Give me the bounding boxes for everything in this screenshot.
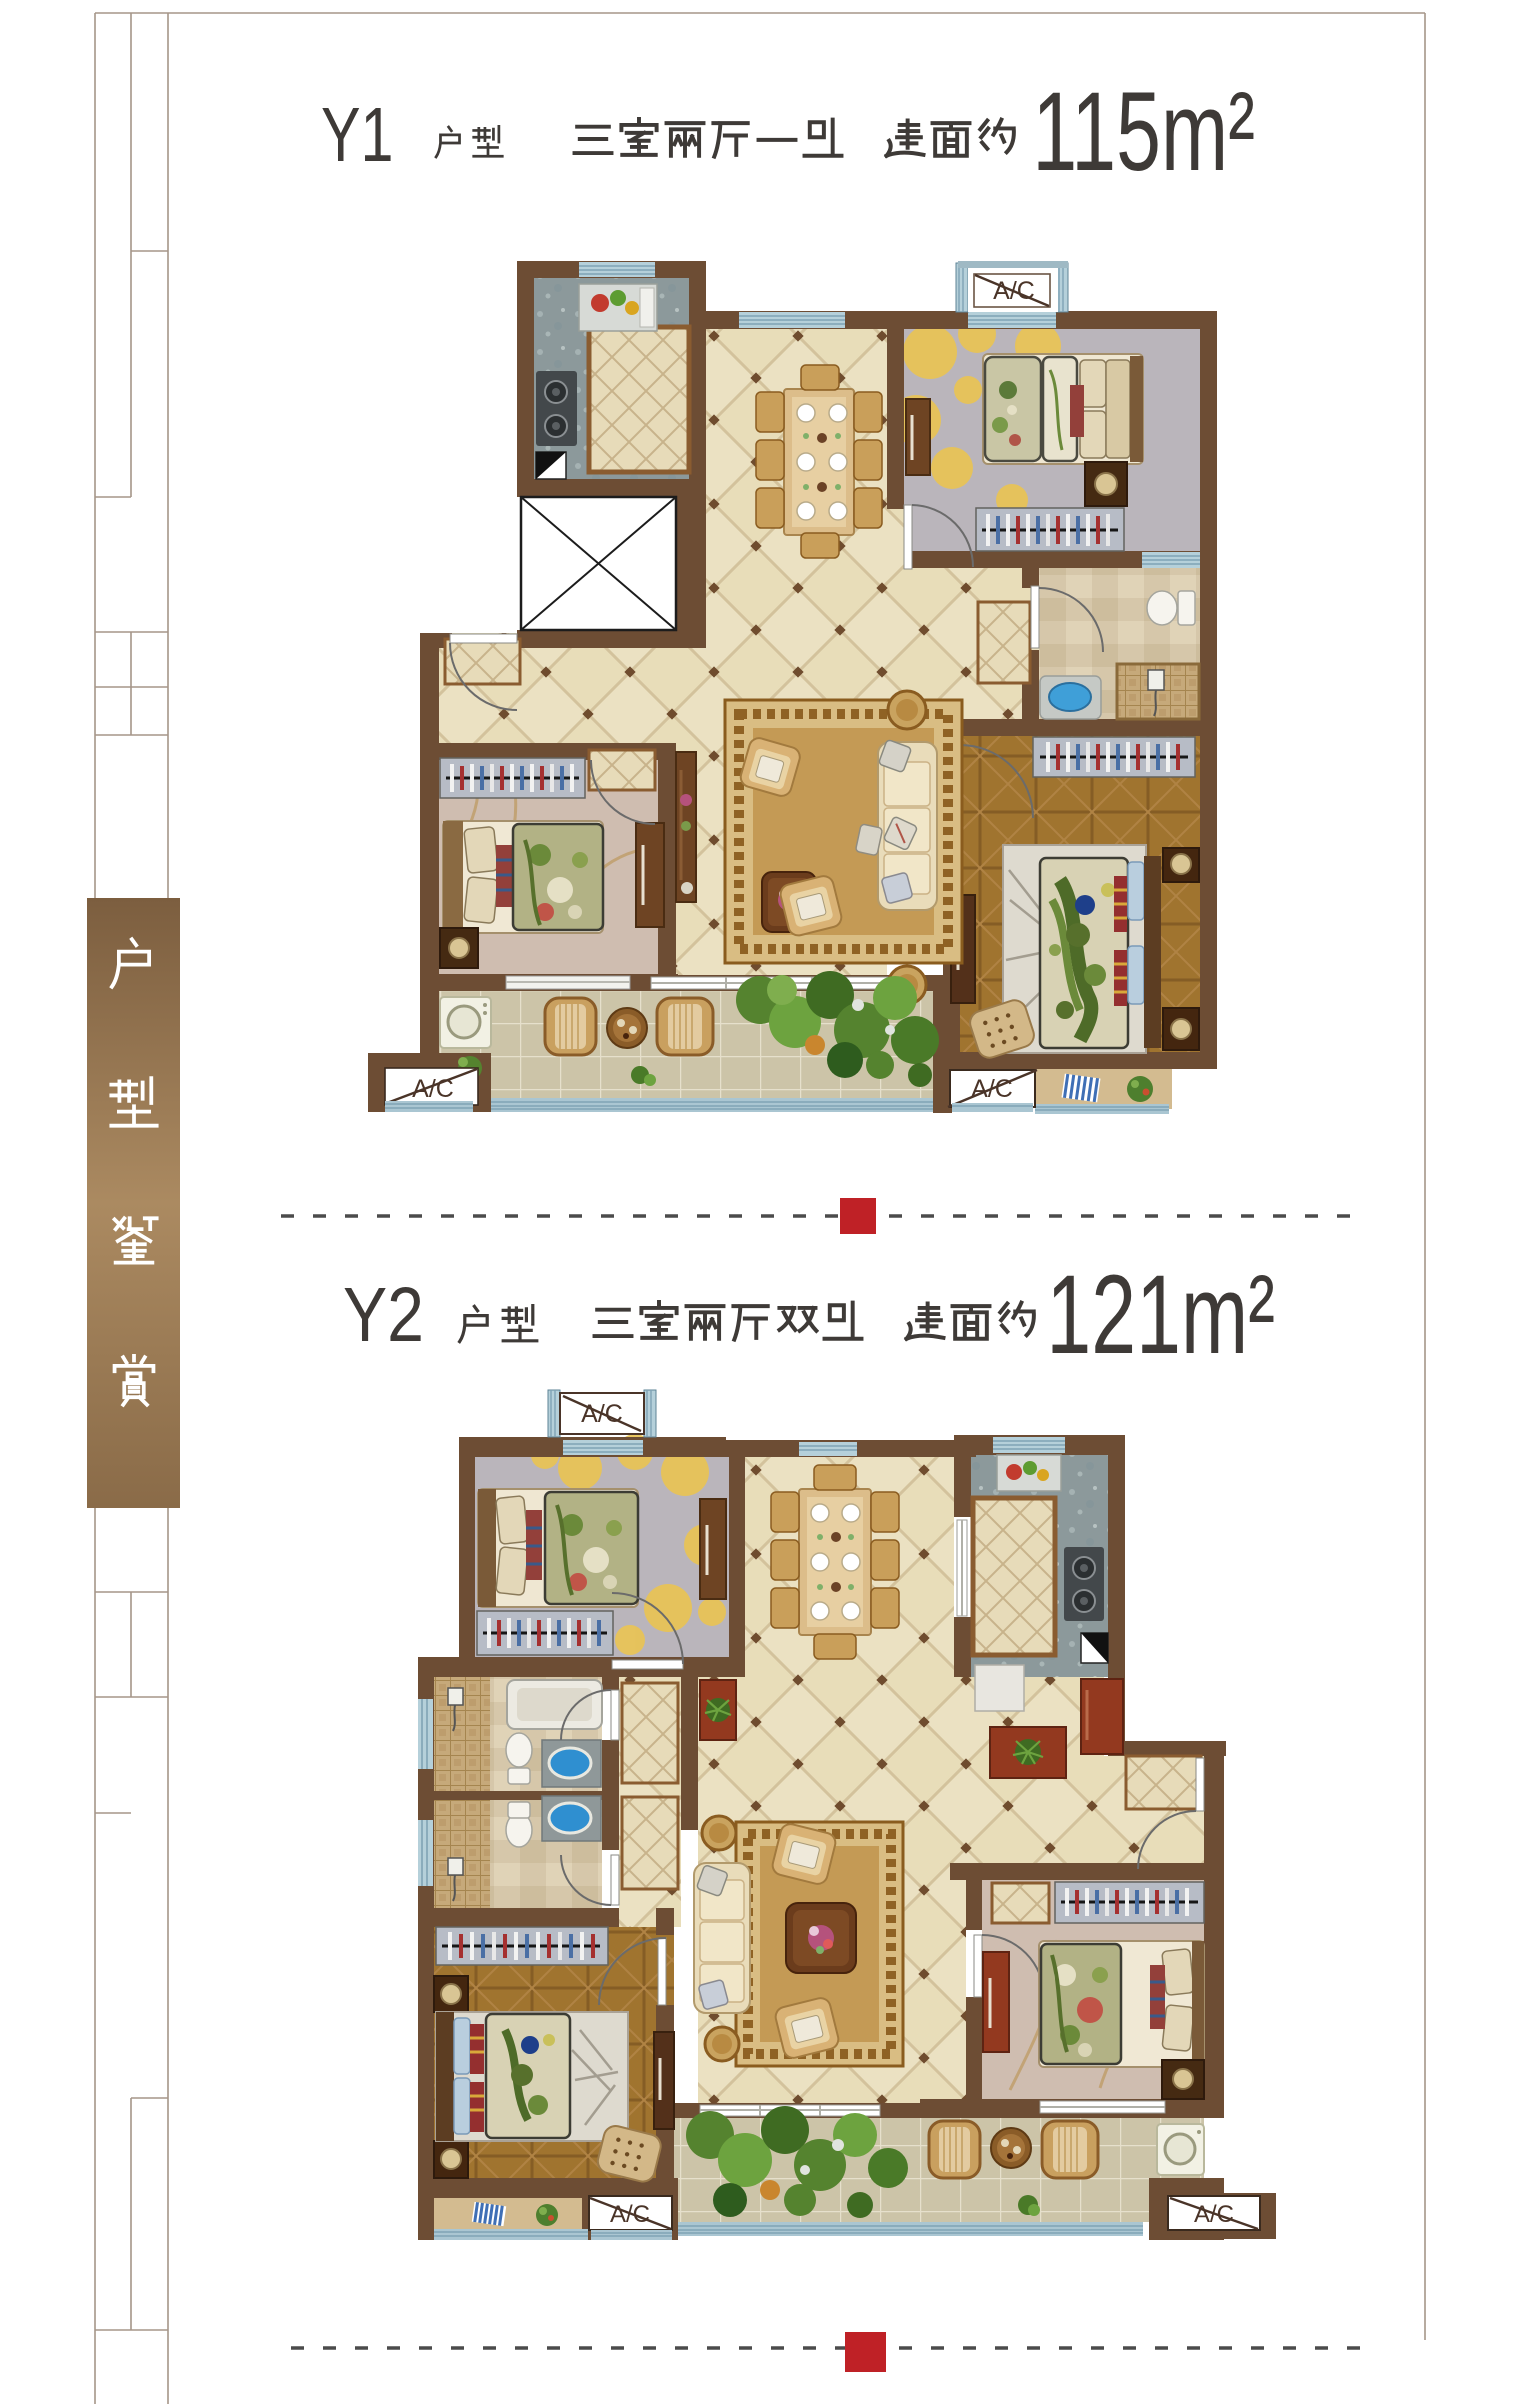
svg-text:115m²: 115m² bbox=[1032, 70, 1255, 185]
svg-text:121m²: 121m² bbox=[1046, 1253, 1275, 1368]
svg-text:Y2: Y2 bbox=[343, 1272, 424, 1358]
svg-text:Y1: Y1 bbox=[321, 92, 394, 178]
